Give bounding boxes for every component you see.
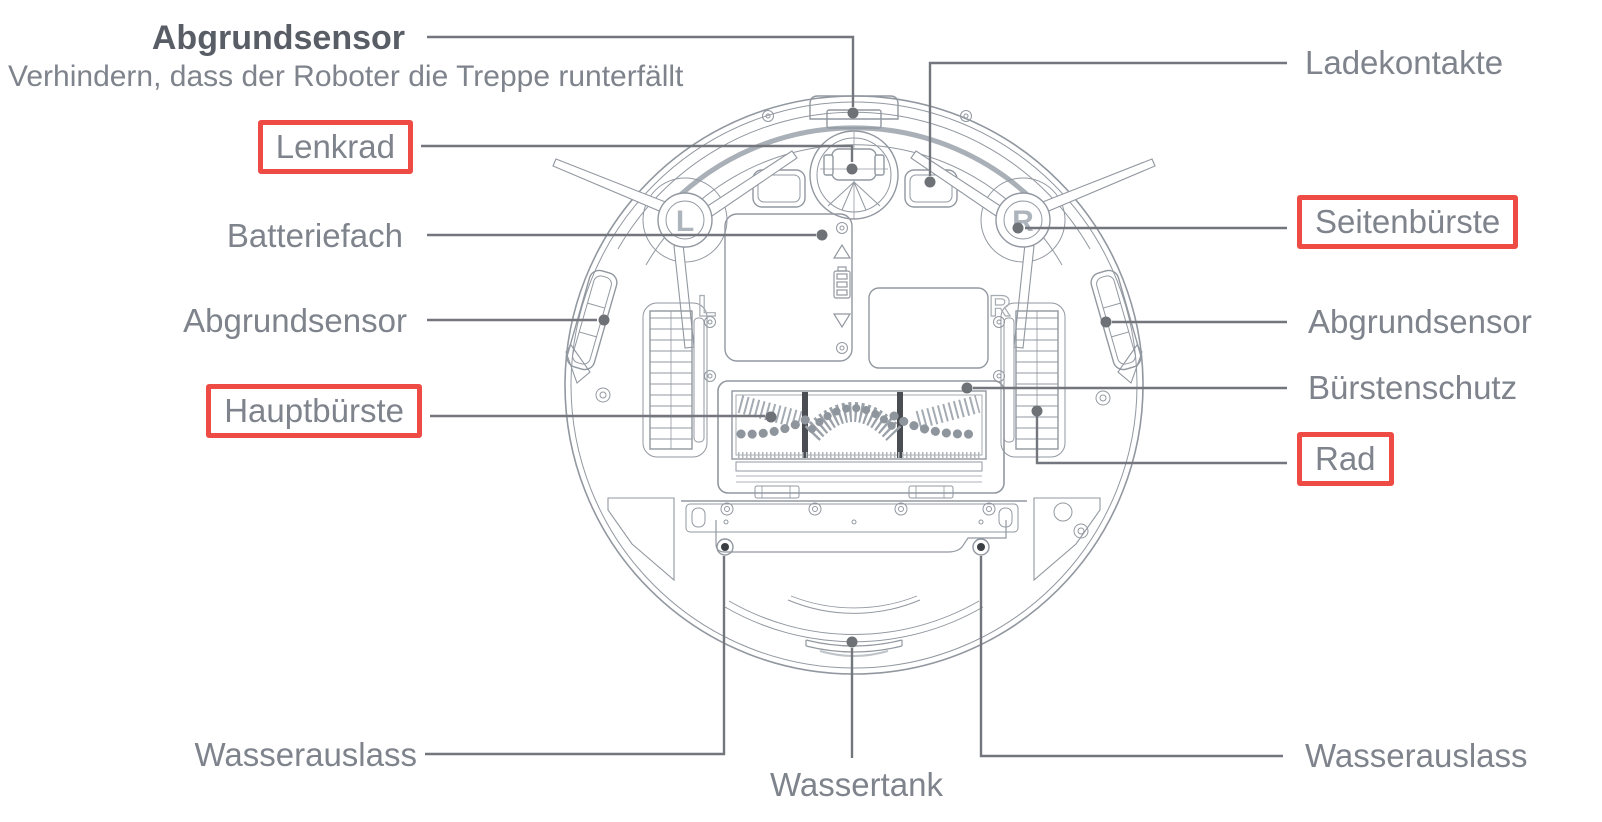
water-tank-plate [608,498,1100,656]
label-wasserauslass-left: Wasserauslass [194,736,417,774]
leader-rad [1037,416,1287,463]
robot-body [553,96,1155,674]
label-abgrundsensor-left: Abgrundsensor [183,302,407,340]
label-buerstenschutz: Bürstenschutz [1308,369,1517,407]
wheel-right [1001,303,1065,457]
floor-letter-left: L [698,290,716,323]
water-outlet-nozzle-right [973,539,989,555]
wheel-left [643,303,707,457]
right-access-panel [869,288,988,368]
cliff-sensor-left [565,268,619,383]
battery-icon [834,267,850,298]
screw-icon [596,317,1110,406]
label-abgrundsensor-top: Abgrundsensor [152,19,405,57]
leader-ladekontakte [930,63,1287,176]
label-wasserauslass-right: Wasserauslass [1305,737,1528,775]
label-wassertank: Wassertank [770,766,943,804]
cliff-sensor-right [1089,268,1143,383]
label-rad-highlighted: Rad [1297,432,1394,486]
caster-wheel [810,131,898,219]
label-hauptbuerste-highlighted: Hauptbürste [206,384,422,438]
hub-letter-right: R [1012,205,1034,238]
label-batteriefach: Batteriefach [227,217,403,255]
page: L R L R [0,0,1602,822]
label-seitenbuerste-highlighted: Seitenbürste [1297,195,1518,249]
leader-wasserauslass-left [425,556,724,754]
label-subtitle: Verhindern, dass der Roboter die Treppe … [8,58,683,96]
floor-letter-right: R [989,290,1011,323]
main-brush-assembly [718,381,1004,498]
label-abgrundsensor-right: Abgrundsensor [1308,303,1532,341]
label-lenkrad-highlighted: Lenkrad [258,120,413,174]
hub-letter-left: L [676,205,694,238]
leader-wasserauslass-right [981,556,1283,756]
label-ladekontakte: Ladekontakte [1305,44,1503,82]
